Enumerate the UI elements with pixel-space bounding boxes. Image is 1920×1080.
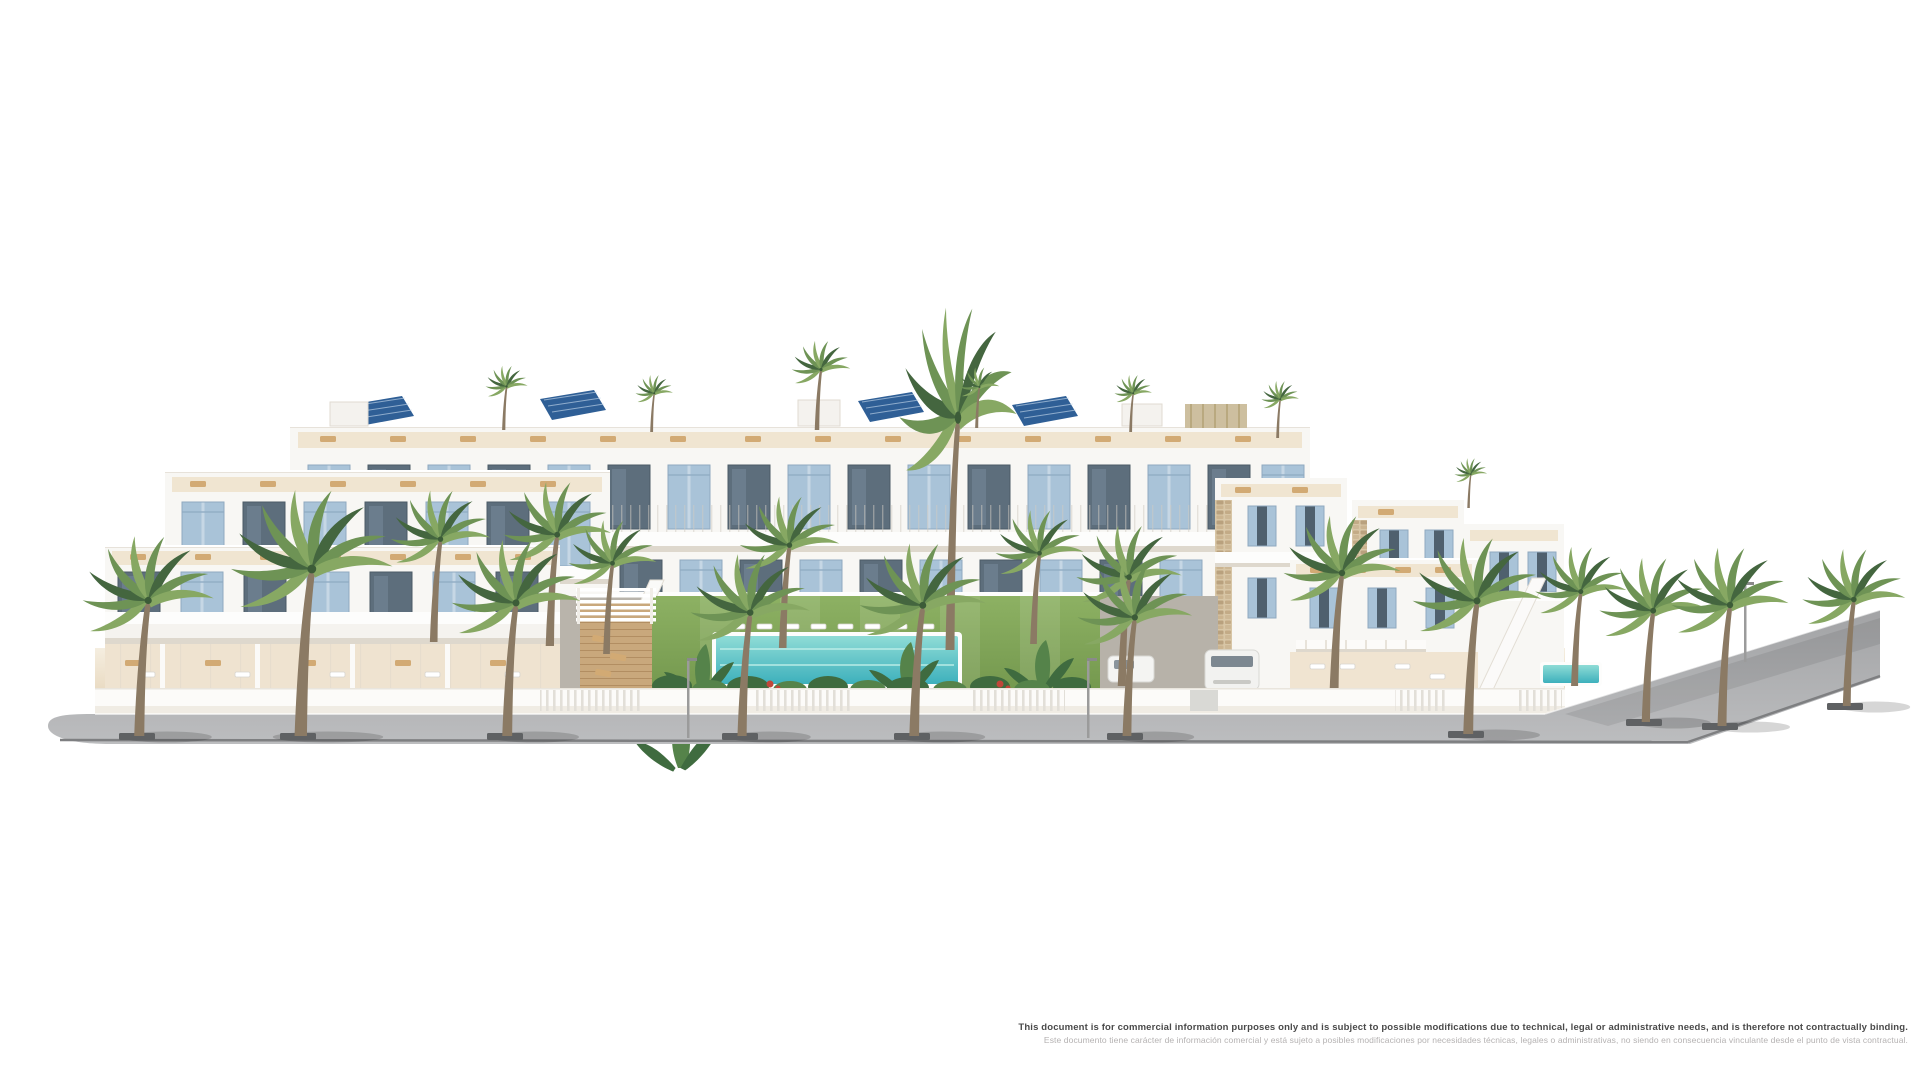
private-pool [1540, 662, 1602, 686]
villa-pergola [1296, 640, 1426, 653]
communal-garden [576, 588, 1102, 772]
complex-illustration [0, 0, 1920, 1080]
roof-pergola [1185, 404, 1247, 428]
render-canvas: This document is for commercial informat… [0, 0, 1920, 1080]
stair-bulkhead [330, 402, 368, 426]
disclaimer-line-en: This document is for commercial informat… [1018, 1023, 1908, 1034]
solar-panel [1012, 396, 1078, 426]
fence [755, 690, 850, 711]
disclaimer: This document is for commercial informat… [1018, 1023, 1908, 1046]
fence [970, 690, 1065, 711]
fence [1518, 690, 1562, 711]
perimeter-wall [95, 688, 1565, 714]
solar-panel [858, 392, 924, 422]
palm-tree [635, 375, 673, 432]
disclaimer-line-es: Este documento tiene carácter de informa… [1018, 1036, 1908, 1046]
fence [1395, 690, 1445, 711]
fence [540, 690, 640, 711]
gate [1190, 690, 1218, 711]
solar-panel [540, 390, 606, 420]
palm-tree [485, 365, 528, 430]
stair-bulkhead [1122, 404, 1162, 426]
roof-terrace-floor [298, 432, 1302, 448]
car-white-suv [1205, 650, 1259, 690]
